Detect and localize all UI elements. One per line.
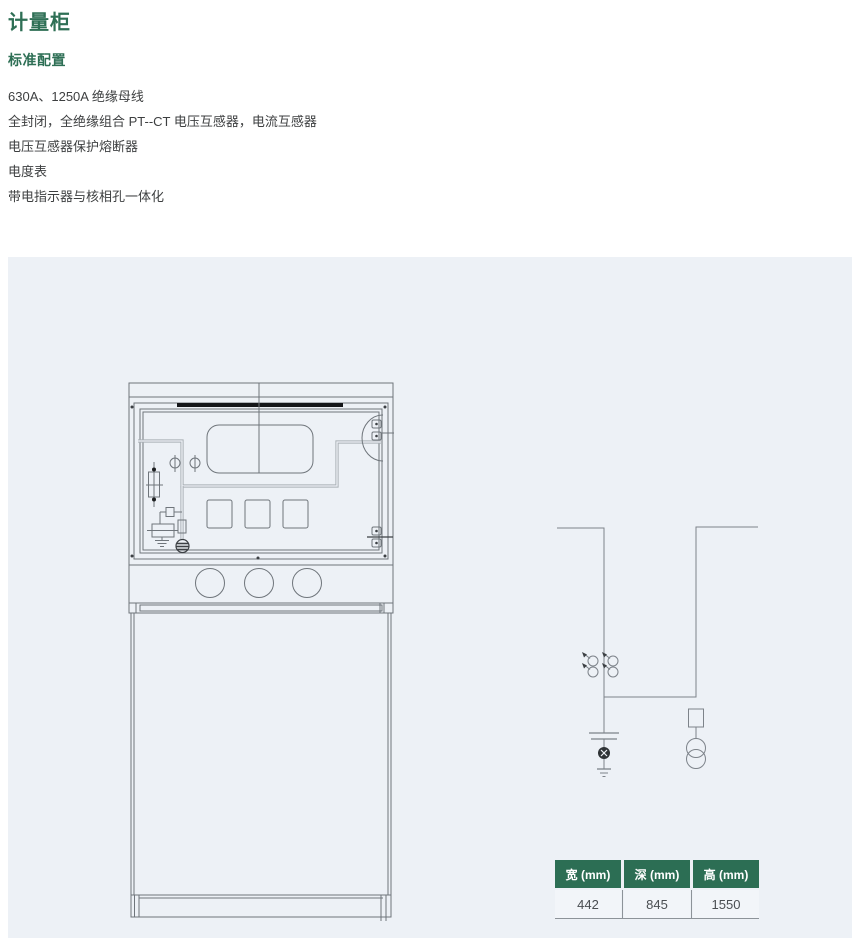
cable-bushing-icon [176, 540, 189, 553]
cable-gland-section [129, 565, 393, 613]
catalog-page: 计量柜 标准配置 630A、1250A 绝缘母线 全封闭，全绝缘组合 PT--C… [0, 0, 860, 941]
lower-cabinet-body [131, 613, 391, 921]
feature-item: 630A、1250A 绝缘母线 [8, 84, 317, 109]
table-separator [691, 890, 692, 918]
cabinet-top-strip [129, 383, 393, 397]
dimensions-table: 宽 (mm) 深 (mm) 高 (mm) 442 845 1550 [555, 860, 759, 919]
top-black-bar [177, 403, 343, 407]
feature-list: 630A、1250A 绝缘母线 全封闭，全绝缘组合 PT--CT 电压互感器，电… [8, 84, 317, 209]
voltage-branch [589, 697, 619, 777]
insulator-symbols [170, 455, 200, 472]
door-hinge-side [362, 415, 394, 547]
header-cell-width: 宽 (mm) [555, 860, 621, 888]
value-cell-height: 1550 [693, 890, 759, 918]
cabinet-front-view-drawing [126, 382, 396, 922]
single-line-diagram-drawing [545, 515, 765, 805]
feature-item: 电度表 [8, 159, 317, 184]
ct-window-squares [207, 500, 308, 528]
page-title: 计量柜 [8, 6, 71, 35]
ground-symbol-icon [155, 537, 169, 547]
feature-item: 带电指示器与核相孔一体化 [8, 184, 317, 209]
feature-item: 全封闭，全绝缘组合 PT--CT 电压互感器，电流互感器 [8, 109, 317, 134]
header-cell-height: 高 (mm) [693, 860, 759, 888]
fuse-symbol [689, 709, 704, 727]
transformer-symbol [687, 739, 706, 769]
dimensions-table-values: 442 845 1550 [555, 890, 759, 919]
figure-panel: 宽 (mm) 深 (mm) 高 (mm) 442 845 1550 [8, 257, 852, 938]
dimensions-table-header: 宽 (mm) 深 (mm) 高 (mm) [555, 860, 759, 888]
indicator-lamp-icon [598, 747, 610, 759]
bus-lines [557, 527, 758, 697]
ground-symbol-icon [597, 769, 611, 777]
pt-box-assembly [147, 508, 182, 547]
value-cell-width: 442 [555, 890, 621, 918]
header-cell-depth: 深 (mm) [624, 860, 690, 888]
fuse-symbol [146, 462, 163, 507]
pt-branch [687, 709, 706, 769]
value-cell-depth: 845 [624, 890, 690, 918]
upper-compartment [129, 383, 393, 565]
table-separator [622, 890, 623, 918]
feature-item: 电压互感器保护熔断器 [8, 134, 317, 159]
section-title: 标准配置 [8, 50, 66, 70]
ct-symbols [582, 652, 618, 677]
inspection-window [207, 425, 313, 473]
